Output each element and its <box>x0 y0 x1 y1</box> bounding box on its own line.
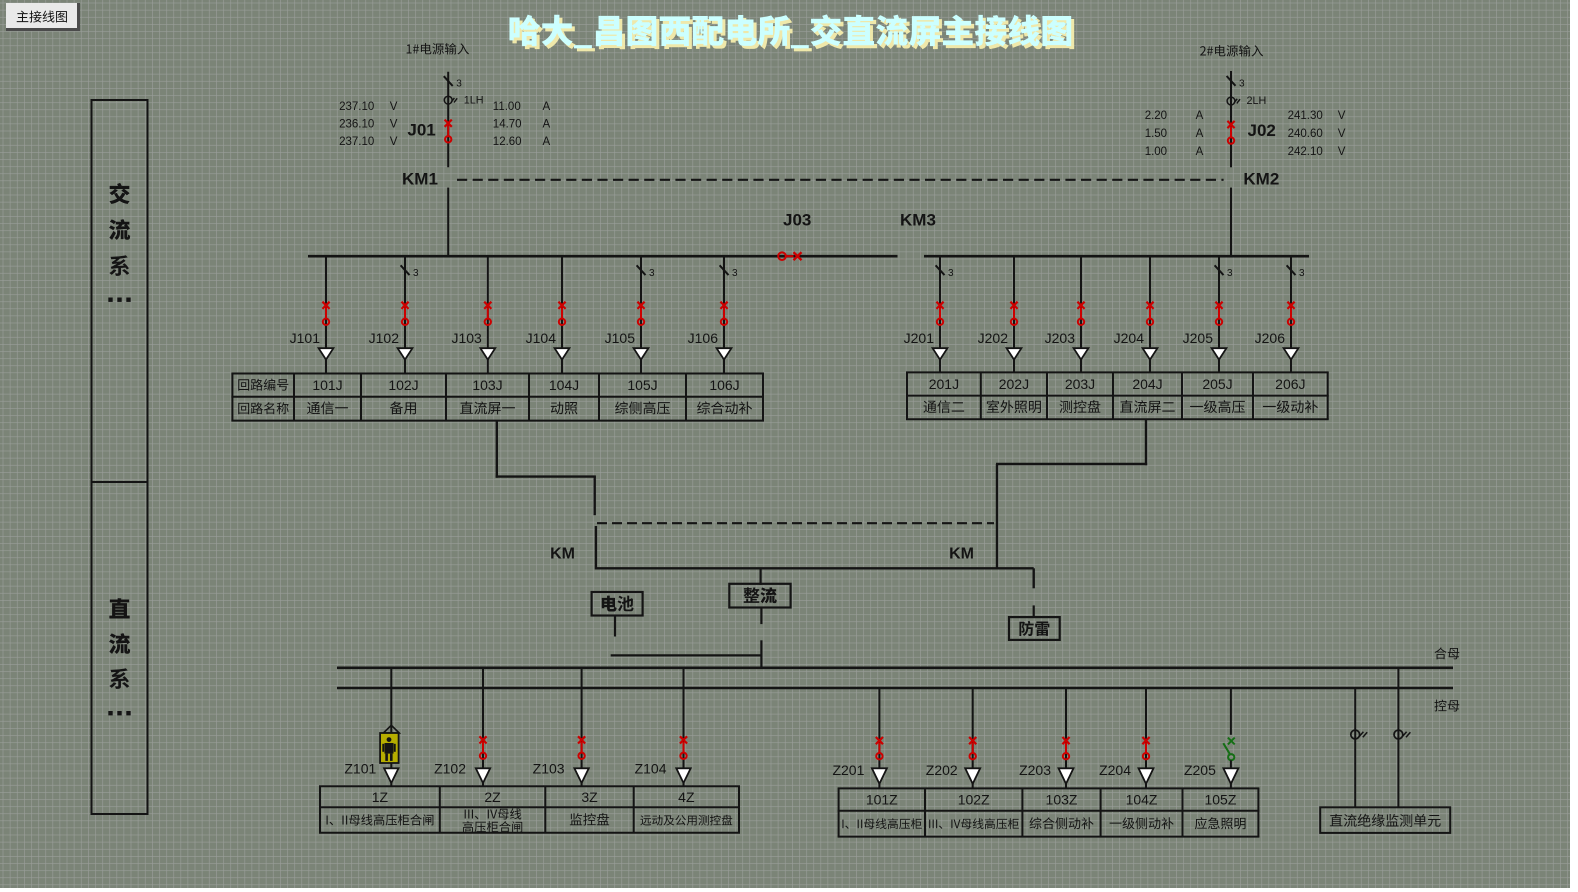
svg-text:KM2: KM2 <box>1243 170 1279 189</box>
svg-text:Z203: Z203 <box>1019 762 1051 778</box>
svg-text:J101: J101 <box>290 330 321 346</box>
svg-text:237.10: 237.10 <box>339 136 374 148</box>
svg-text:Z102: Z102 <box>434 761 466 777</box>
svg-text:105J: 105J <box>627 377 657 393</box>
svg-text:V: V <box>390 118 398 130</box>
svg-text:101Z: 101Z <box>866 792 898 808</box>
svg-text:Z205: Z205 <box>1184 762 1216 778</box>
svg-text:202J: 202J <box>999 376 1029 392</box>
svg-text:14.70: 14.70 <box>493 118 522 130</box>
svg-text:KM: KM <box>949 546 974 563</box>
svg-text:1Z: 1Z <box>372 789 389 805</box>
svg-text:102Z: 102Z <box>958 792 990 808</box>
svg-text:3: 3 <box>1299 268 1305 279</box>
svg-text:3: 3 <box>732 268 738 279</box>
svg-text:A: A <box>543 101 551 113</box>
svg-text:V: V <box>1338 110 1346 122</box>
svg-text:J105: J105 <box>605 330 636 346</box>
svg-text:A: A <box>543 118 551 130</box>
svg-text:J206: J206 <box>1255 330 1286 346</box>
svg-text:J203: J203 <box>1045 330 1076 346</box>
svg-text:102J: 102J <box>388 377 418 393</box>
svg-text:204J: 204J <box>1132 376 1162 392</box>
svg-text:J205: J205 <box>1183 330 1214 346</box>
svg-text:1.00: 1.00 <box>1145 146 1167 158</box>
svg-text:A: A <box>1196 128 1204 140</box>
svg-text:2Z: 2Z <box>484 789 501 805</box>
svg-text:242.10: 242.10 <box>1288 146 1323 158</box>
svg-text:2LH: 2LH <box>1247 95 1267 107</box>
svg-text:J104: J104 <box>526 330 557 346</box>
svg-text:104Z: 104Z <box>1126 792 1158 808</box>
svg-text:12.60: 12.60 <box>493 136 522 148</box>
svg-text:J204: J204 <box>1114 330 1145 346</box>
svg-text:KM1: KM1 <box>402 170 438 189</box>
svg-text:103J: 103J <box>472 377 502 393</box>
svg-text:237.10: 237.10 <box>339 101 374 113</box>
svg-text:A: A <box>543 136 551 148</box>
svg-text:Z204: Z204 <box>1099 762 1131 778</box>
svg-text:J03: J03 <box>783 211 811 230</box>
svg-text:J202: J202 <box>978 330 1009 346</box>
svg-text:J106: J106 <box>688 330 719 346</box>
svg-text:V: V <box>390 101 398 113</box>
svg-text:J103: J103 <box>451 330 482 346</box>
svg-text:3: 3 <box>413 268 419 279</box>
svg-text:240.60: 240.60 <box>1288 128 1323 140</box>
svg-text:103Z: 103Z <box>1046 792 1078 808</box>
svg-text:A: A <box>1196 146 1204 158</box>
svg-text:V: V <box>390 136 398 148</box>
svg-text:206J: 206J <box>1275 376 1305 392</box>
svg-text:J201: J201 <box>904 330 935 346</box>
svg-text:4Z: 4Z <box>678 789 695 805</box>
svg-text:3: 3 <box>1227 268 1233 279</box>
svg-text:Z103: Z103 <box>533 761 565 777</box>
svg-text:201J: 201J <box>929 376 959 392</box>
svg-text:3: 3 <box>649 268 655 279</box>
svg-text:241.30: 241.30 <box>1288 110 1323 122</box>
svg-text:V: V <box>1338 128 1346 140</box>
svg-text:2.20: 2.20 <box>1145 110 1167 122</box>
svg-text:104J: 104J <box>549 377 579 393</box>
svg-text:236.10: 236.10 <box>339 118 374 130</box>
svg-text:3: 3 <box>948 268 954 279</box>
svg-text:11.00: 11.00 <box>493 101 521 113</box>
svg-text:KM: KM <box>550 546 575 563</box>
svg-text:Z202: Z202 <box>926 762 958 778</box>
svg-text:J102: J102 <box>369 330 400 346</box>
svg-text:J02: J02 <box>1248 121 1276 140</box>
svg-text:V: V <box>1338 146 1346 158</box>
svg-text:3: 3 <box>456 79 462 90</box>
svg-text:Z201: Z201 <box>832 762 864 778</box>
svg-text:KM3: KM3 <box>900 211 936 230</box>
svg-text:Z101: Z101 <box>344 761 376 777</box>
svg-text:1LH: 1LH <box>464 94 484 106</box>
svg-text:3Z: 3Z <box>581 789 598 805</box>
svg-text:205J: 205J <box>1202 376 1232 392</box>
svg-text:101J: 101J <box>312 377 342 393</box>
svg-text:3: 3 <box>1239 79 1245 90</box>
svg-text:J01: J01 <box>407 121 435 140</box>
svg-text:Z104: Z104 <box>635 761 667 777</box>
svg-text:A: A <box>1196 110 1204 122</box>
svg-text:203J: 203J <box>1065 376 1095 392</box>
svg-text:106J: 106J <box>709 377 739 393</box>
svg-text:105Z: 105Z <box>1204 792 1236 808</box>
svg-text:1.50: 1.50 <box>1145 128 1167 140</box>
